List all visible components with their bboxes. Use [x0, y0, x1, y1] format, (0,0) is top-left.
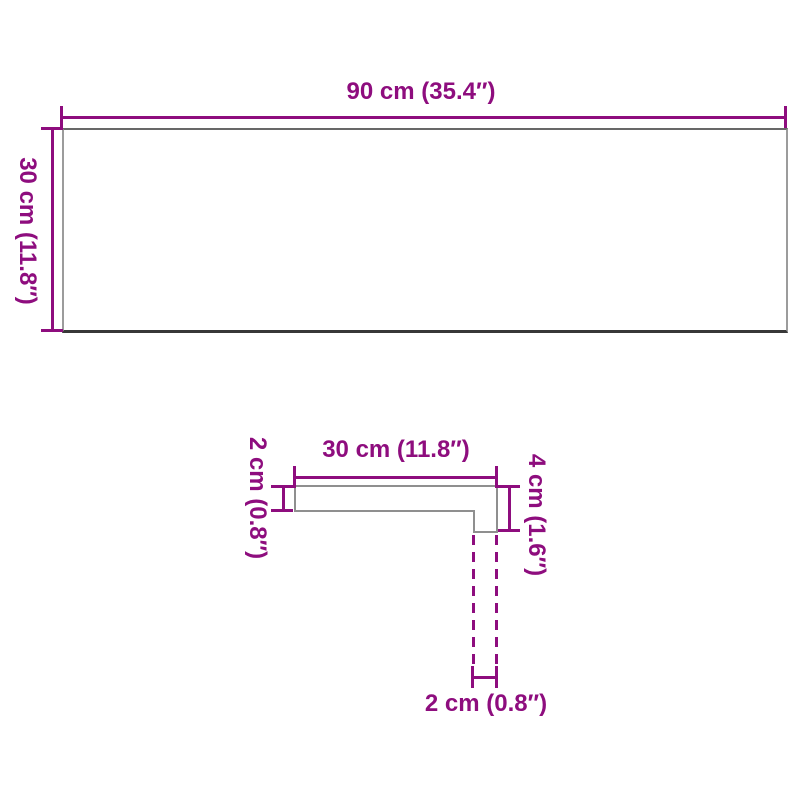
top-width-dimension-line — [61, 116, 787, 119]
dimension-tick — [41, 127, 63, 130]
dimension-tick — [60, 106, 63, 128]
dimension-tick — [784, 106, 787, 128]
dimension-tick — [271, 509, 293, 512]
profile-width-dimension-line — [294, 476, 497, 479]
l-profile-outline — [0, 0, 800, 800]
profile-height-dimension-label: 4 cm (1.6″) — [524, 454, 548, 576]
board-top-view-rectangle — [62, 128, 788, 333]
profile-leg-width-dimension-label: 2 cm (0.8″) — [425, 692, 547, 716]
profile-width-dimension-label: 30 cm (11.8″) — [322, 438, 470, 462]
top-height-dimension-label: 30 cm (11.8″) — [15, 157, 39, 305]
profile-height-dimension-line — [508, 487, 511, 531]
dimension-tick — [271, 485, 293, 488]
top-height-dimension-line — [51, 128, 54, 331]
profile-thickness-dimension-label: 2 cm (0.8″) — [245, 437, 269, 559]
dimension-tick — [41, 329, 63, 332]
dimension-diagram: 90 cm (35.4″) 30 cm (11.8″) 30 cm (11.8″… — [0, 0, 800, 800]
dimension-tick — [498, 485, 520, 488]
dimension-tick — [498, 529, 520, 532]
dimension-tick — [495, 666, 498, 688]
top-width-dimension-label: 90 cm (35.4″) — [347, 80, 496, 104]
dimension-tick — [471, 666, 474, 688]
dimension-tick — [293, 466, 296, 488]
extension-line-dashed — [495, 535, 498, 665]
extension-line-dashed — [472, 535, 475, 665]
